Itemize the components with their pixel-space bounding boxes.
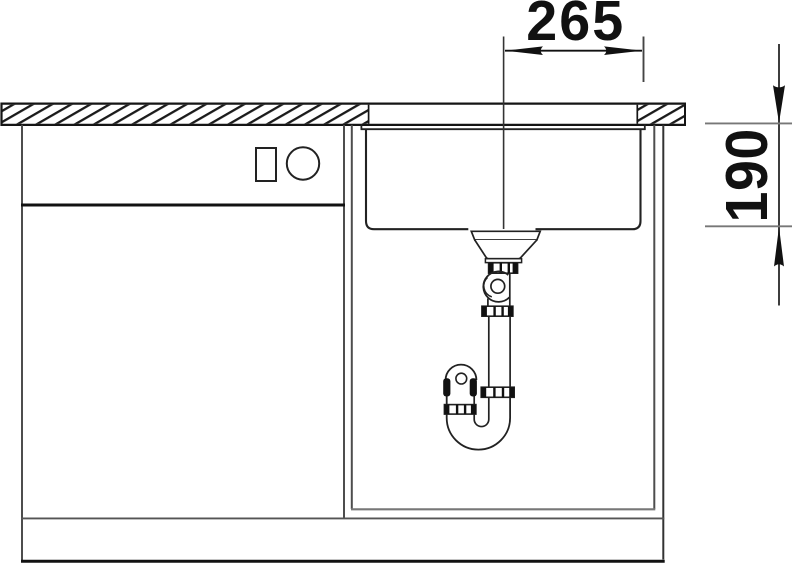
svg-text:265: 265 [526, 0, 625, 52]
svg-text:190: 190 [714, 128, 780, 222]
